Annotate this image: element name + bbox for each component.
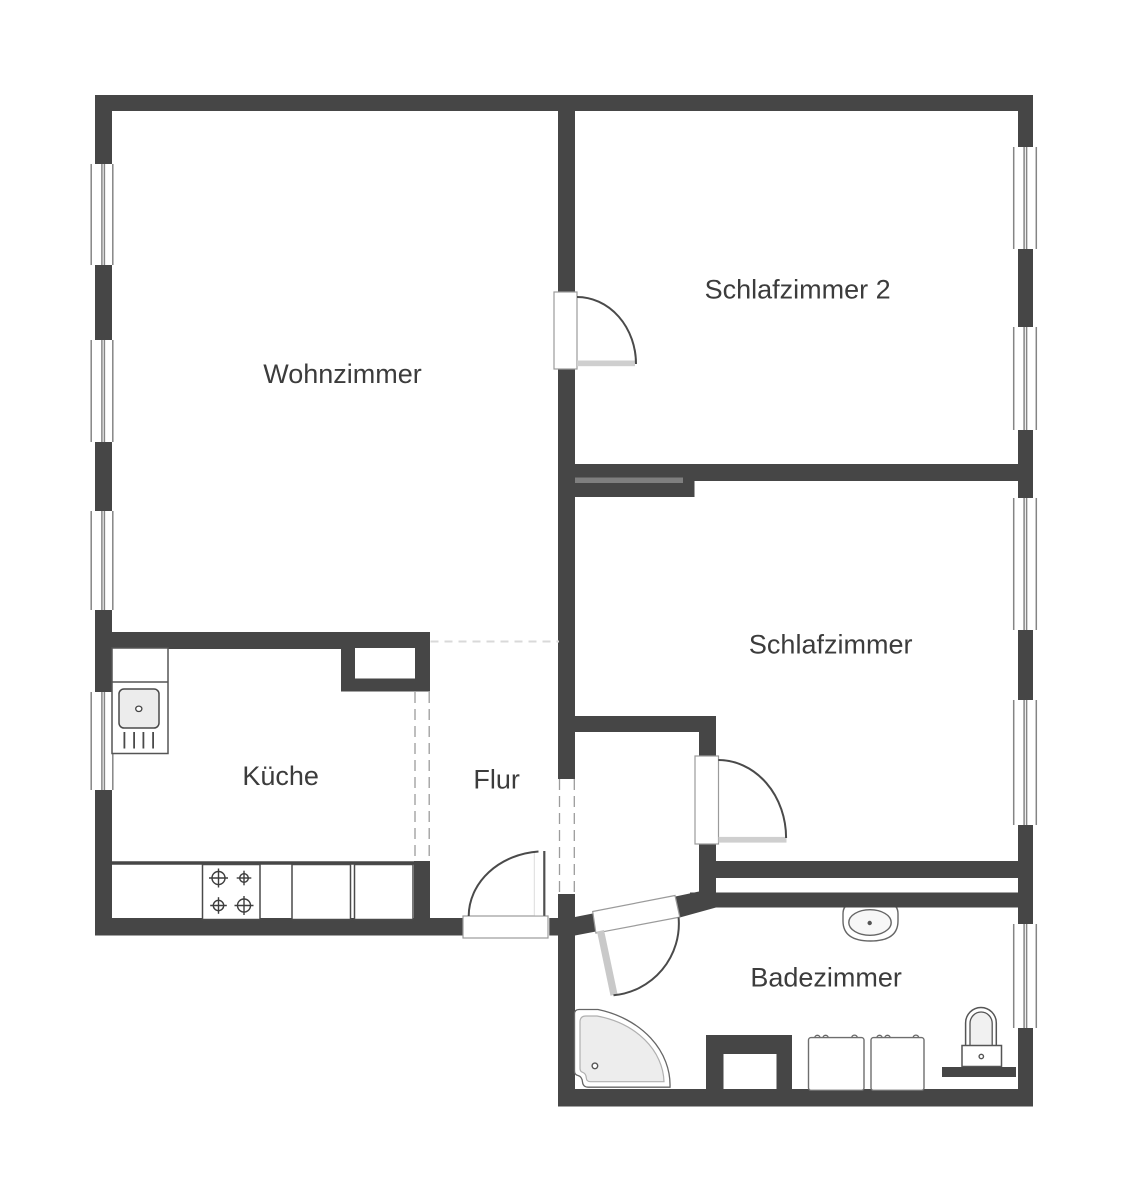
- svg-text:Schlafzimmer: Schlafzimmer: [749, 630, 913, 660]
- svg-text:Flur: Flur: [473, 765, 520, 795]
- svg-text:Küche: Küche: [242, 761, 319, 791]
- svg-text:Schlafzimmer 2: Schlafzimmer 2: [705, 275, 891, 305]
- svg-text:Badezimmer: Badezimmer: [750, 963, 902, 993]
- svg-text:Wohnzimmer: Wohnzimmer: [263, 359, 422, 389]
